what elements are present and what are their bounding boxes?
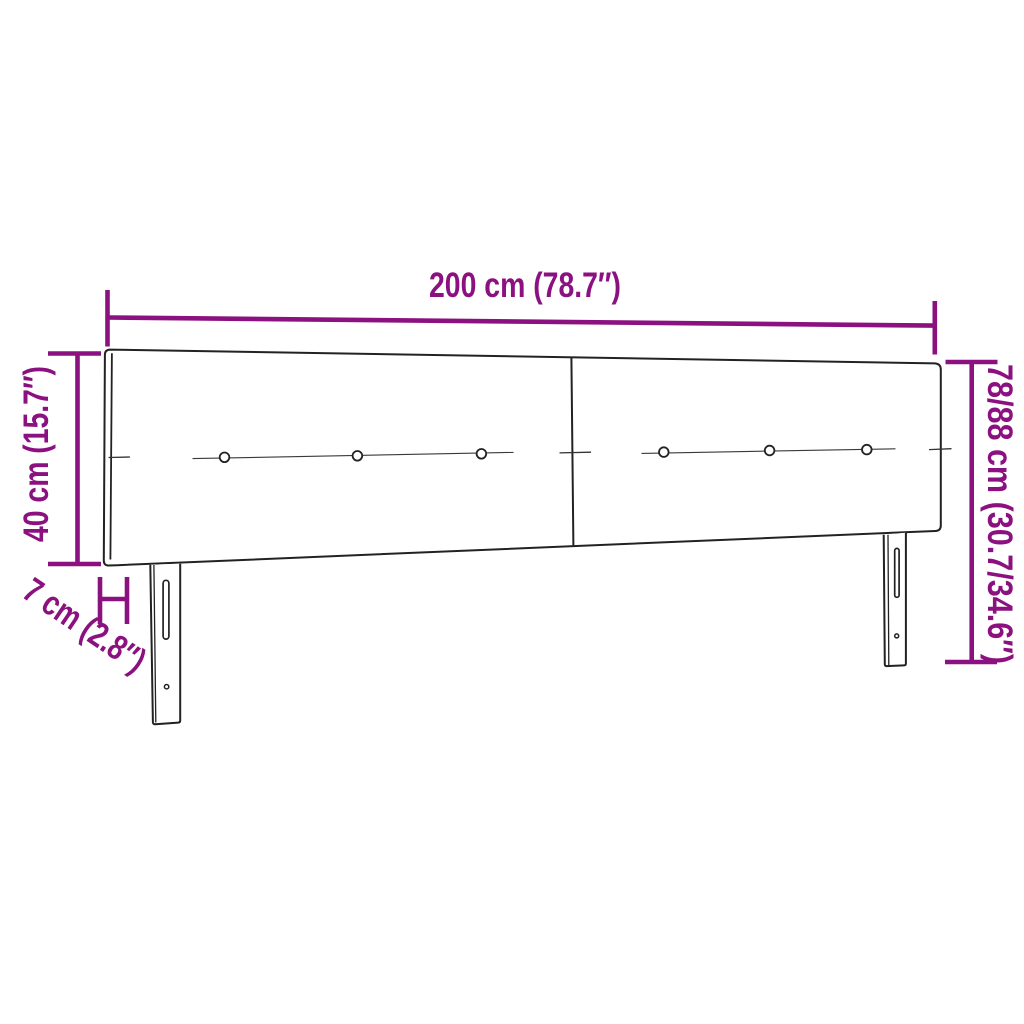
svg-text:78/88 cm (30.7/34.6″): 78/88 cm (30.7/34.6″) bbox=[980, 364, 1019, 664]
svg-text:40 cm (15.7″): 40 cm (15.7″) bbox=[17, 366, 56, 542]
svg-text:200 cm (78.7″): 200 cm (78.7″) bbox=[429, 266, 621, 305]
